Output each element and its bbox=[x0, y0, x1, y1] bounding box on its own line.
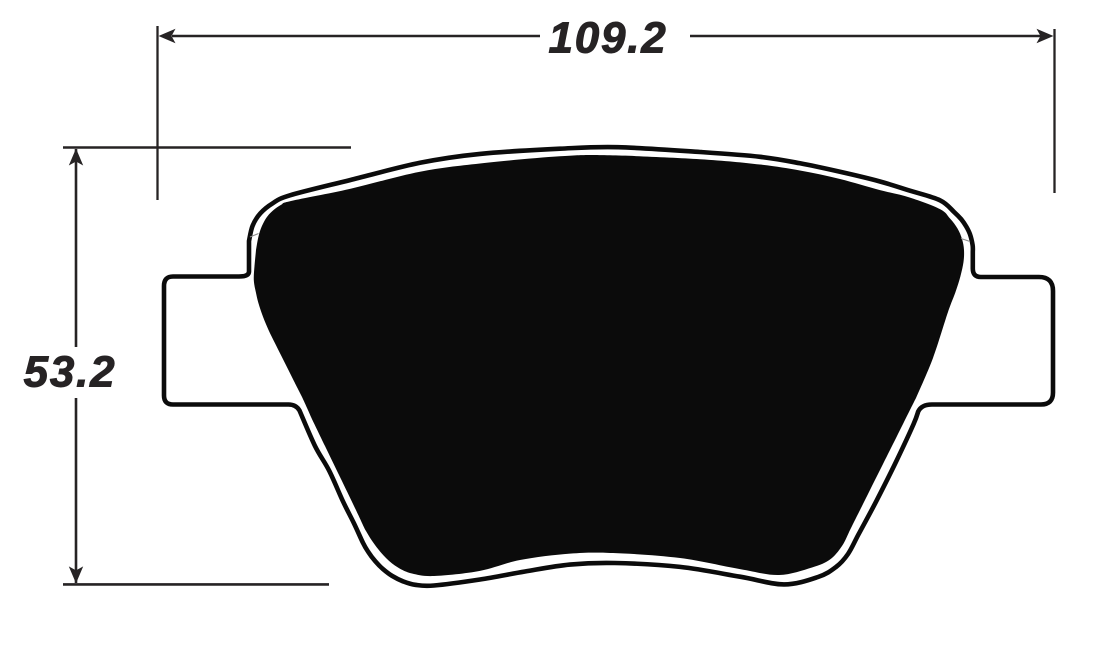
svg-text:53.2: 53.2 bbox=[24, 348, 117, 397]
svg-text:109.2: 109.2 bbox=[548, 14, 667, 63]
